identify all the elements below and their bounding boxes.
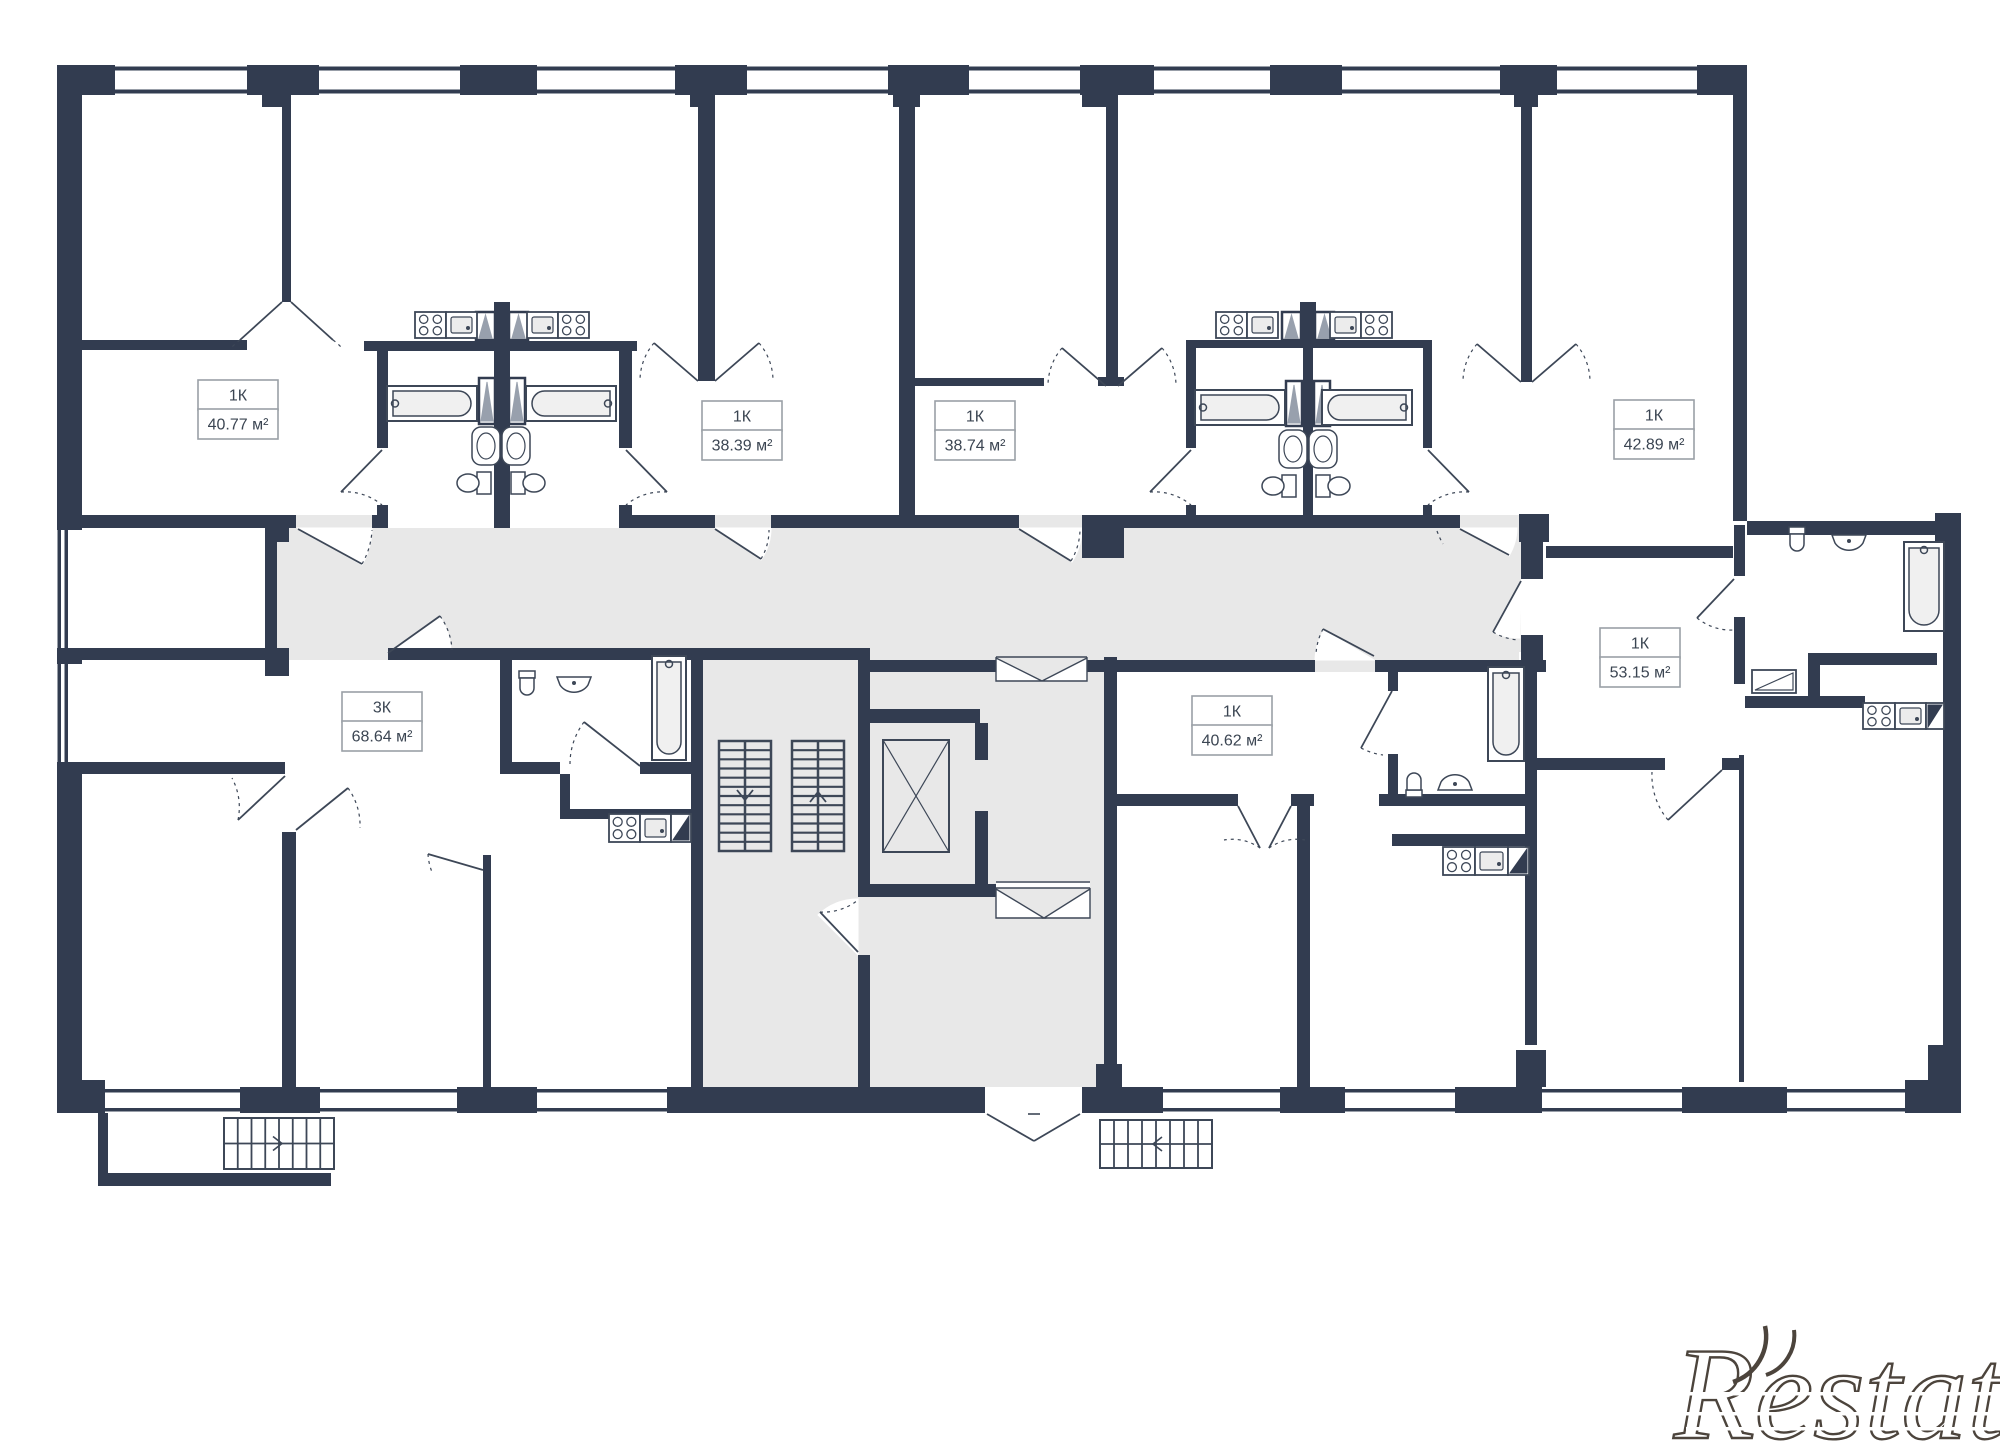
svg-text:68.64 м²: 68.64 м²: [352, 729, 413, 746]
svg-text:3К: 3К: [373, 700, 392, 717]
svg-text:1К: 1К: [966, 409, 985, 426]
svg-text:1К: 1К: [1645, 408, 1664, 425]
svg-text:1К: 1К: [733, 409, 752, 426]
svg-text:1К: 1К: [229, 388, 248, 405]
svg-text:38.74 м²: 38.74 м²: [945, 438, 1006, 455]
svg-text:38.39 м²: 38.39 м²: [712, 438, 773, 455]
svg-text:53.15 м²: 53.15 м²: [1610, 665, 1671, 682]
svg-text:1К: 1К: [1223, 704, 1242, 721]
svg-text:42.89 м²: 42.89 м²: [1624, 437, 1685, 454]
svg-text:40.77 м²: 40.77 м²: [208, 417, 269, 434]
svg-text:1К: 1К: [1631, 636, 1650, 653]
svg-text:40.62 м²: 40.62 м²: [1202, 733, 1263, 750]
svg-text:Restate: Restate: [1673, 1320, 2000, 1441]
